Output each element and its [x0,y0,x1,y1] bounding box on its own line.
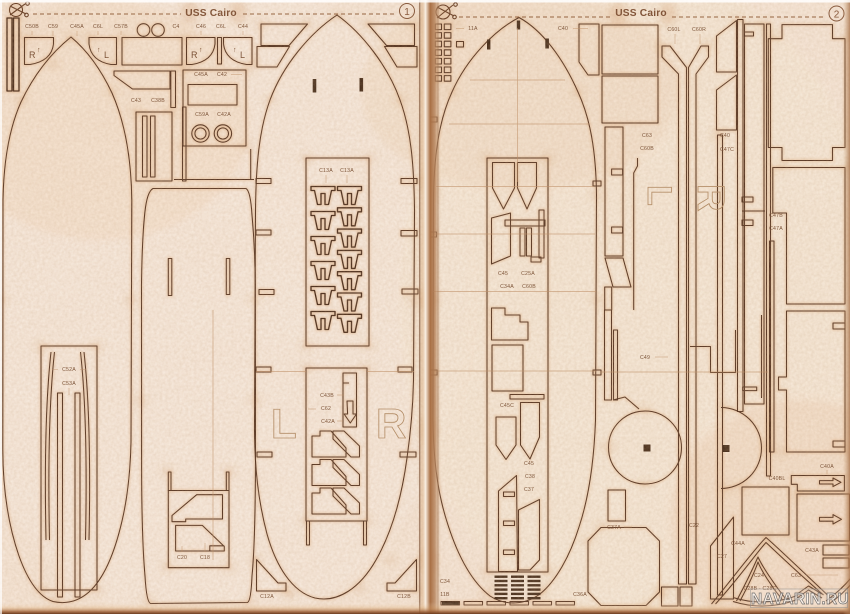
svg-text:NAVARIN.RU: NAVARIN.RU [751,591,849,608]
